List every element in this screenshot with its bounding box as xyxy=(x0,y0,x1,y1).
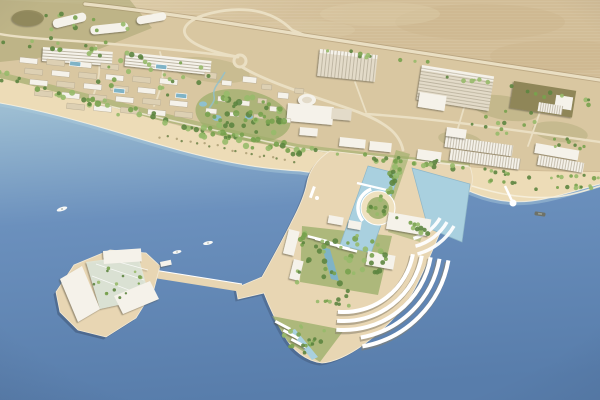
resort-model-aerial-photo xyxy=(0,0,600,400)
photo-vignette xyxy=(0,0,600,400)
photo-stage xyxy=(0,0,600,400)
